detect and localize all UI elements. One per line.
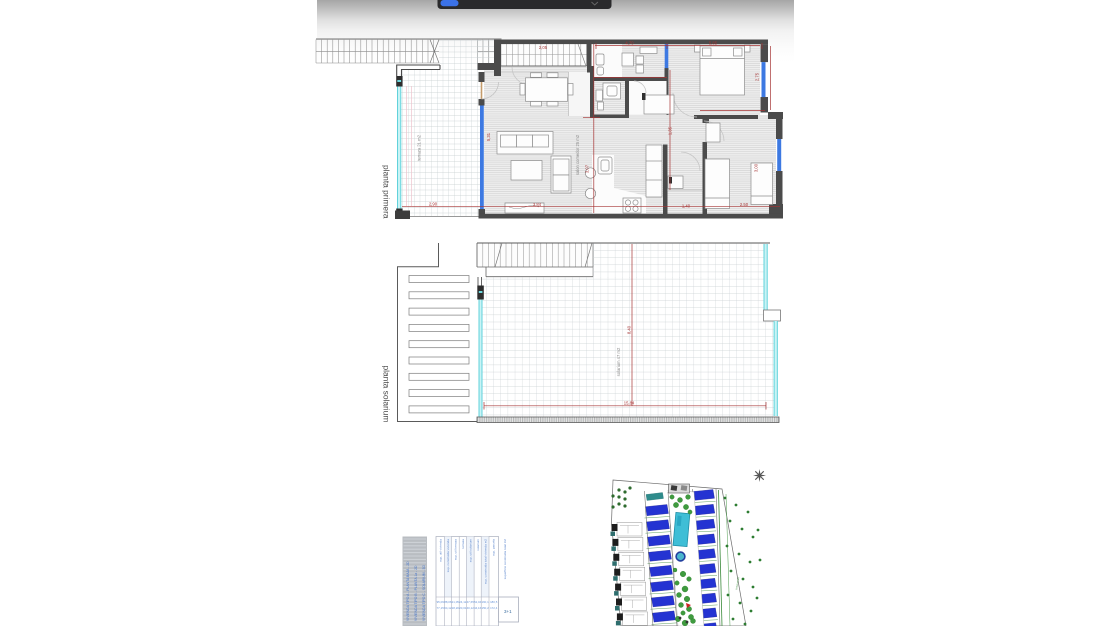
svg-text:superficie construida total m2: superficie construida total m2 (503, 539, 507, 580)
svg-text:sup. parcela: sup. parcela (492, 539, 496, 556)
svg-text:2,75: 2,75 (755, 72, 760, 81)
svg-text:VIVIENDA TIPO C - SOLARIUM - 3: VIVIENDA TIPO C - SOLARIUM - 3D (422, 565, 426, 621)
svg-text:solarium 47 m2: solarium 47 m2 (616, 347, 621, 376)
svg-text:planta primera: planta primera (382, 165, 392, 219)
svg-text:5,85: 5,85 (709, 41, 718, 46)
svg-text:terraza 21 m2: terraza 21 m2 (417, 134, 422, 161)
svg-text:salon comedor 25 m2: salon comedor 25 m2 (575, 134, 580, 175)
svg-text:3,07: 3,07 (584, 164, 589, 173)
svg-text:77,15: 77,15 (437, 606, 445, 610)
svg-text:3,84: 3,84 (533, 202, 542, 207)
svg-text:3,00: 3,00 (754, 163, 759, 172)
svg-text:18,20: 18,20 (452, 606, 460, 610)
svg-text:2,50: 2,50 (740, 202, 749, 207)
svg-text:VIVIENDA TIPO B - PLANTA 1a -: VIVIENDA TIPO B - PLANTA 1a - 2D (414, 565, 418, 621)
svg-text:52,04: 52,04 (474, 600, 482, 604)
svg-text:150,2: 150,2 (481, 606, 489, 610)
svg-text:planta solarium: planta solarium (382, 366, 392, 423)
svg-text:160,1: 160,1 (481, 600, 489, 604)
svg-text:4,70: 4,70 (625, 41, 634, 46)
svg-text:21,05: 21,05 (452, 600, 460, 604)
svg-text:8,40: 8,40 (627, 325, 632, 334)
svg-text:sup. construida total vivienda: sup. construida total vivienda m2 (484, 539, 488, 584)
svg-text:sup. util terraza: sup. util terraza (454, 539, 458, 560)
svg-text:2,05: 2,05 (539, 45, 548, 50)
svg-text:sup. construida vivienda: sup. construida vivienda (446, 539, 450, 572)
svg-text:sup. util solarium: sup. util solarium (469, 539, 473, 563)
svg-text:3+1: 3+1 (504, 609, 512, 614)
svg-text:172,4: 172,4 (490, 606, 498, 610)
svg-text:solarium: solarium (476, 539, 480, 551)
svg-text:44,16: 44,16 (474, 606, 482, 610)
svg-text:1,35: 1,35 (668, 126, 673, 135)
svg-text:VIVIENDA TIPO A - PLANTA BAJA: VIVIENDA TIPO A - PLANTA BAJA - 2D (406, 561, 410, 621)
svg-text:5,31: 5,31 (486, 132, 491, 141)
svg-text:95,09: 95,09 (437, 600, 445, 604)
svg-text:sup. util vivienda: sup. util vivienda (439, 539, 443, 562)
svg-text:2,90: 2,90 (429, 202, 438, 207)
svg-text:terraza: terraza (461, 539, 465, 549)
svg-text:180,5: 180,5 (490, 600, 498, 604)
svg-text:1,40: 1,40 (682, 203, 691, 208)
svg-text:15,84: 15,84 (624, 401, 635, 406)
